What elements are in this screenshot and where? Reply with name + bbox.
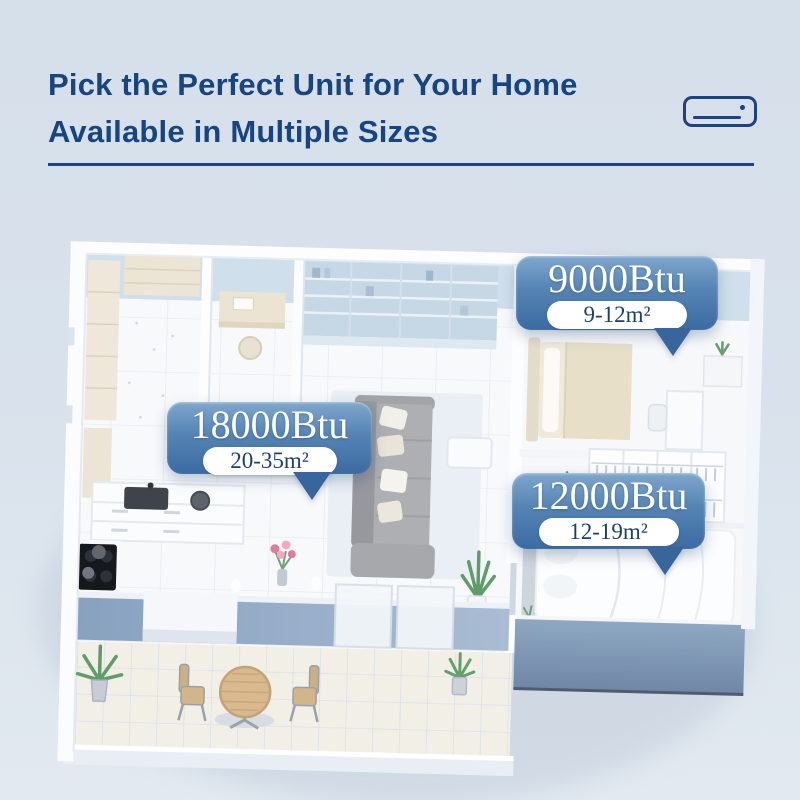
balcony [63, 636, 516, 776]
btu-value-living-room: 18000Btu [167, 405, 372, 445]
dresser [703, 356, 742, 387]
glass-door [396, 586, 454, 649]
side-table [447, 437, 492, 468]
btu-value-medium-bedroom: 12000Btu [512, 476, 705, 516]
ac-vent-line [693, 116, 741, 119]
area-range-small-bedroom: 9-12m² [547, 301, 687, 329]
ac-indicator-dot [740, 105, 745, 110]
area-range-living-room: 20-35m² [203, 447, 337, 475]
bedroom-desk [666, 391, 704, 450]
area-range-medium-bedroom: 12-19m² [539, 518, 679, 546]
air-conditioner-icon [683, 96, 757, 127]
pointer-tail-icon [646, 547, 684, 575]
callout-badge-small-bedroom: 9000Btu 9-12m² [516, 256, 718, 330]
page: Pick the Perfect Unit for Your Home Avai… [0, 0, 800, 800]
glass-door [334, 584, 392, 647]
callout-badge-living-room: 18000Btu 20-35m² [167, 402, 372, 474]
pointer-tail-icon [293, 472, 331, 500]
title-line-1: Pick the Perfect Unit for Your Home [48, 61, 578, 108]
header-divider [48, 163, 754, 166]
callout-badge-medium-bedroom: 12000Btu 12-19m² [512, 473, 705, 549]
front-wall-right [513, 615, 745, 696]
door-step [143, 591, 238, 635]
kitchen-sink [124, 487, 169, 510]
title-line-2: Available in Multiple Sizes [48, 108, 578, 155]
page-title: Pick the Perfect Unit for Your Home Avai… [48, 61, 578, 155]
mixing-bowl [191, 492, 209, 510]
btu-value-small-bedroom: 9000Btu [516, 259, 718, 299]
bookshelf [300, 261, 498, 349]
pointer-tail-icon [654, 328, 692, 356]
